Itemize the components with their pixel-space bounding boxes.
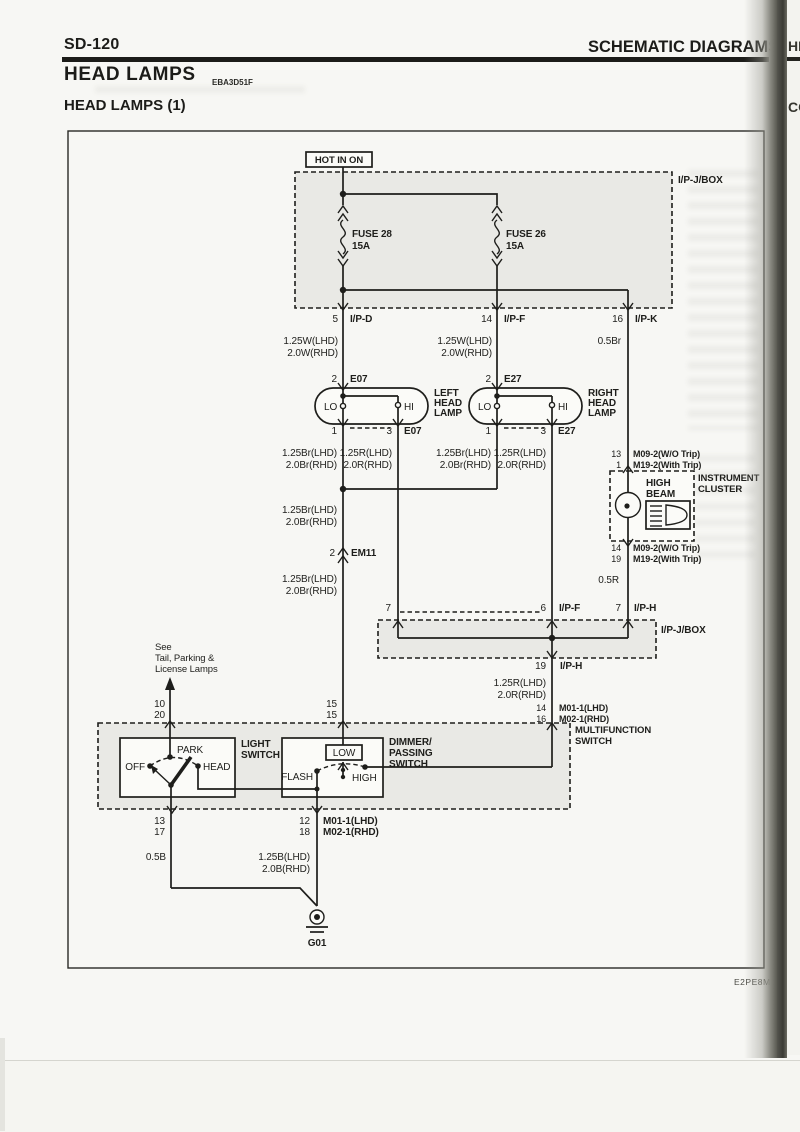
right-lamp-name: LAMP [588, 408, 616, 419]
ground-name: G01 [308, 938, 327, 949]
high-beam-label: BEAM [646, 489, 675, 500]
wire-label: 1.25W(LHD) [283, 336, 338, 347]
pin-15: 15 [326, 699, 337, 710]
pin-5: 5 [333, 314, 339, 325]
conn-m01-1: M01-1(LHD) [559, 703, 608, 713]
pin-13: 13 [154, 816, 165, 827]
wire-label: 2.0Br(RHD) [440, 460, 491, 471]
headlamp-schematic-diagram: HOT IN ON I/P-J/BOX FUSE 28 15A FUSE 26 … [0, 0, 800, 1131]
mfs-label: SWITCH [575, 736, 612, 747]
pin-16: 16 [536, 714, 546, 724]
wire-label: 2.0R(RHD) [343, 460, 392, 471]
pin-3: 3 [541, 426, 547, 437]
mid-junction-box [378, 620, 656, 658]
pin-12: 12 [299, 816, 310, 827]
scanned-manual-page: { "header": { "page_number": "SD-120", "… [0, 0, 800, 1131]
pin-3: 3 [387, 426, 393, 437]
fuse28-name: FUSE 28 [352, 229, 392, 240]
low-position: LOW [333, 748, 356, 759]
wire-label: 2.0Br(RHD) [286, 517, 337, 528]
scan-artifact [0, 1038, 5, 1131]
midbox-label: I/P-J/BOX [661, 625, 706, 636]
conn-iph: I/P-H [560, 661, 582, 672]
lo-label: LO [478, 402, 491, 413]
pin-2: 2 [486, 374, 492, 385]
fuse28-amp: 15A [352, 241, 370, 252]
conn-m02-1: M02-1(RHD) [323, 827, 379, 838]
pin-2: 2 [330, 548, 336, 559]
see-note: Tail, Parking & [155, 653, 215, 664]
fuse26-name: FUSE 26 [506, 229, 546, 240]
conn-m01-1: M01-1(LHD) [323, 816, 378, 827]
head-position: HEAD [203, 762, 230, 773]
pin-13: 13 [611, 449, 621, 459]
wire-label: 1.25W(LHD) [437, 336, 492, 347]
conn-ipf: I/P-F [559, 603, 580, 614]
wire-label: 2.0W(RHD) [287, 348, 338, 359]
pin-10: 10 [154, 699, 165, 710]
wire-label: 2.0R(RHD) [497, 460, 546, 471]
wire-label: 1.25R(LHD) [494, 678, 546, 689]
pin-1: 1 [616, 460, 621, 470]
conn-ipk: I/P-K [635, 314, 658, 325]
pin-19: 19 [611, 554, 621, 564]
conn-iph: I/P-H [634, 603, 656, 614]
conn-e27: E27 [558, 426, 576, 437]
pin-19: 19 [535, 661, 546, 672]
wire-label: 1.25Br(LHD) [282, 505, 337, 516]
see-note: License Lamps [155, 664, 218, 675]
left-lamp-name: LAMP [434, 408, 462, 419]
conn-m09-2: M09-2(W/O Trip) [633, 543, 700, 553]
off-position: OFF [125, 762, 145, 773]
pin-7: 7 [616, 603, 622, 614]
mfs-label: MULTIFUNCTION [575, 725, 651, 736]
high-beam-label: HIGH [646, 478, 671, 489]
wire-label: 1.25Br(LHD) [282, 574, 337, 585]
next-page-tab-top: HE [788, 38, 800, 54]
park-position: PARK [177, 745, 204, 756]
conn-m09-2: M09-2(W/O Trip) [633, 449, 700, 459]
conn-e07: E07 [404, 426, 422, 437]
pin-1: 1 [332, 426, 338, 437]
next-page-tab-bottom: CO [788, 99, 800, 115]
dimmer-label: SWITCH [389, 759, 428, 770]
pin-14: 14 [611, 543, 621, 553]
hot-in-on-label: HOT IN ON [315, 155, 363, 166]
page-bottom-edge [0, 1060, 800, 1132]
hi-label: HI [404, 402, 414, 413]
conn-em11: EM11 [351, 548, 377, 559]
high-position: HIGH [352, 773, 377, 784]
conn-e07: E07 [350, 374, 368, 385]
wire-label: 1.25Br(LHD) [282, 448, 337, 459]
pin-1: 1 [486, 426, 492, 437]
hi-label: HI [558, 402, 568, 413]
wire-label: 0.5R [598, 575, 619, 586]
pin-14: 14 [481, 314, 492, 325]
see-note: See [155, 642, 172, 653]
next-page-sliver: HE CO [787, 0, 800, 1055]
pin-18: 18 [299, 827, 310, 838]
conn-m19-2: M19-2(With Trip) [633, 460, 701, 470]
pin-20: 20 [154, 710, 165, 721]
dimmer-label: PASSING [389, 748, 433, 759]
power-junction-box [295, 172, 672, 308]
wire-label: 2.0B(RHD) [262, 864, 310, 875]
ground-symbol [306, 910, 328, 932]
wire-label: 1.25R(LHD) [340, 448, 392, 459]
pin-7: 7 [386, 603, 392, 614]
conn-m19-2: M19-2(With Trip) [633, 554, 701, 564]
see-note-arrow [165, 677, 175, 690]
conn-m02-1: M02-1(RHD) [559, 714, 609, 724]
pin-15: 15 [326, 710, 337, 721]
light-switch-label: SWITCH [241, 750, 280, 761]
page-curl-shadow [744, 0, 777, 1058]
pin-2: 2 [332, 374, 338, 385]
pin-6: 6 [541, 603, 547, 614]
wire-label: 1.25Br(LHD) [436, 448, 491, 459]
wire-label: 0.5B [146, 852, 167, 863]
conn-ipf: I/P-F [504, 314, 525, 325]
conn-e27: E27 [504, 374, 522, 385]
wire-label: 2.0R(RHD) [497, 690, 546, 701]
lo-label: LO [324, 402, 337, 413]
dimmer-label: DIMMER/ [389, 737, 432, 748]
fuse26-amp: 15A [506, 241, 524, 252]
next-page-rule [787, 57, 800, 61]
wire-label: 2.0Br(RHD) [286, 460, 337, 471]
power-box-label: I/P-J/BOX [678, 175, 723, 186]
cluster-label: CLUSTER [698, 484, 742, 495]
flash-position: FLASH [281, 772, 313, 783]
light-switch-label: LIGHT [241, 739, 271, 750]
conn-ipd: I/P-D [350, 314, 372, 325]
wire-label: 1.25R(LHD) [494, 448, 546, 459]
wire-label: 2.0Br(RHD) [286, 586, 337, 597]
wire-label: 0.5Br [598, 336, 622, 347]
pin-16: 16 [612, 314, 623, 325]
pin-17: 17 [154, 827, 165, 838]
wire-label: 2.0W(RHD) [441, 348, 492, 359]
page-edge-shadow [777, 0, 787, 1058]
pin-14: 14 [536, 703, 546, 713]
wire-label: 1.25B(LHD) [258, 852, 310, 863]
